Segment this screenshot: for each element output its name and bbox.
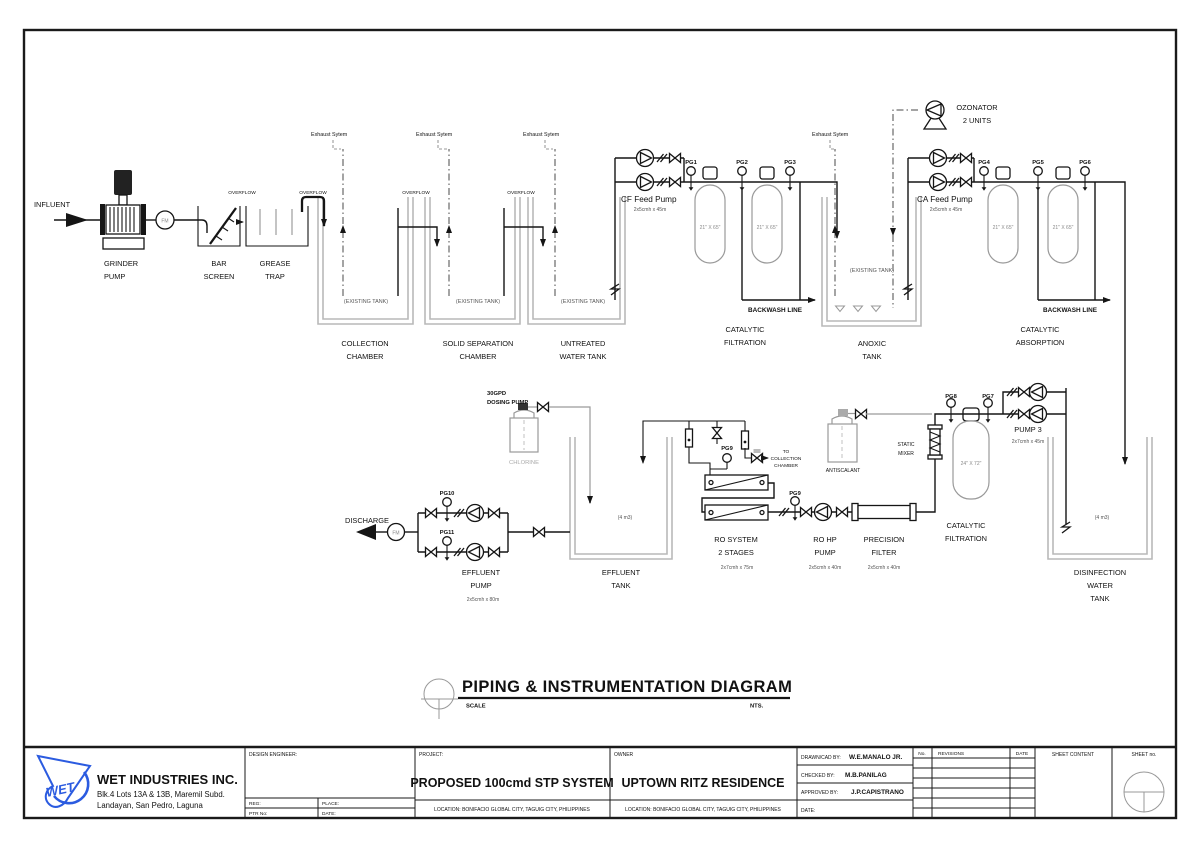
influent-train: FM [54, 170, 324, 249]
logo-text: WET [45, 779, 77, 800]
catalytic-absorption-label: CATALYTICABSORPTION [1016, 325, 1064, 347]
overflow-label: OVERFLOW [299, 190, 327, 196]
chlorine-label: CHLORINE [509, 460, 539, 466]
cf-pump-icon [637, 150, 654, 167]
pid-drawing-sheet: FM [0, 0, 1200, 848]
pressure-gauge-icon [443, 498, 452, 522]
existing-tank-label: (EXISTING TANK) [456, 299, 500, 305]
pressure-gauge-icon [786, 167, 795, 191]
precision-filter-symbol [852, 504, 916, 521]
ozonator-label: OZONATOR2 UNITS [956, 103, 997, 125]
pg5-label: PG5 [1032, 160, 1044, 166]
precision-filter-spec: 2x5cmh x 40m [868, 565, 901, 571]
bar-screen-label: BARSCREEN [204, 259, 235, 281]
owner-location: LOCATION: BONIFACIO GLOBAL CITY, TAGUIG … [625, 807, 781, 813]
existing-tank-label: (EXISTING TANK) [561, 299, 605, 305]
solid-separation-label: SOLID SEPARATIONCHAMBER [443, 339, 514, 361]
discharge-label: DISCHARGE [345, 516, 389, 525]
ca-pump-icon [930, 150, 947, 167]
gate-valve-icon [856, 410, 867, 419]
to-collection-chamber-label: TOCOLLECTIONCHAMBER [771, 449, 802, 469]
influent-arrow [66, 213, 88, 227]
approved-by-label: APPROVED BY: [801, 790, 838, 796]
vessel-size-label: 24" X 72" [961, 461, 982, 467]
ro-system-spec: 2x7cmh x 75m [721, 565, 754, 571]
pg10-label: PG10 [440, 491, 455, 497]
pg9-label: PG9 [789, 491, 801, 497]
effluent-pump-label: EFFLUENTPUMP [462, 568, 501, 590]
pg7-label: PG7 [982, 394, 994, 400]
influent-label: INFLUENT [34, 200, 71, 209]
tank-volume-label: (4 m3) [1095, 515, 1110, 521]
backwash-line-label: BACKWASH LINE [1043, 307, 1098, 314]
ozonator-symbol [924, 101, 946, 129]
exhaust-system-label: Exhaust Sytem [311, 132, 348, 138]
disinfection-tank-label: DISINFECTIONWATERTANK [1074, 568, 1126, 603]
exhaust-system-label: Exhaust Sytem [416, 132, 453, 138]
rev-no-header: No. [918, 751, 925, 757]
gate-valve-icon [961, 178, 972, 187]
sheet-no-label: SHEET no. [1132, 752, 1157, 758]
company-name: WET INDUSTRIES INC. [97, 772, 238, 787]
sheet-no-symbol [1124, 772, 1164, 812]
effluent-pump-train: FM [356, 498, 570, 561]
pressure-gauge-icon [1034, 167, 1043, 191]
cf-feed-train [611, 150, 837, 301]
transfer-pipes [398, 208, 543, 296]
cf2-vessel [953, 421, 989, 499]
drawn-by-label: DRAWN/CAD BY: [801, 755, 841, 761]
cf-feed-pump-label: CF Feed Pump [621, 195, 677, 204]
overflow-label: OVERFLOW [402, 190, 430, 196]
pg6-label: PG6 [1079, 160, 1091, 166]
pg4-label: PG4 [978, 160, 990, 166]
drawn-by-value: W.E.MANALO JR. [849, 754, 902, 761]
project-name: PROPOSED 100cmd STP SYSTEM [410, 776, 613, 790]
ro-system-label: RO SYSTEM2 STAGES [714, 535, 758, 557]
sheet-content-label: SHEET CONTENT [1052, 752, 1094, 758]
revisions-header: REVISIONS [938, 751, 964, 757]
company-address: Blk.4 Lots 13A & 13B, Maremil Subd.Landa… [97, 790, 225, 810]
cf-feed-pump-spec: 2x5cmh x 45m [634, 207, 667, 213]
pump3-spec: 2x7cmh x 45m [1012, 439, 1045, 445]
existing-tank-label: (EXISTING TANK) [850, 268, 894, 274]
ro-hp-pump-spec: 2x5cmh x 40m [809, 565, 842, 571]
ca-feed-pump-label: CA Feed Pump [917, 195, 973, 204]
ca-vessel-1 [988, 185, 1018, 263]
effluent-pump-icon [467, 505, 484, 522]
bar-screen-symbol [198, 206, 243, 246]
pg8-label: PG8 [945, 394, 957, 400]
pressure-gauge-icon [723, 454, 732, 469]
fm-label: FM [161, 219, 168, 225]
antiscalant-dosing [828, 409, 932, 462]
gate-valve-icon [670, 154, 681, 163]
reg-label: REG: [249, 801, 261, 807]
anoxic-diffusers [836, 306, 881, 312]
grease-trap-symbol [246, 206, 308, 246]
gate-valve-icon [538, 403, 549, 412]
scale-label: SCALE [466, 704, 486, 710]
pid-diagram: FM [0, 0, 1200, 848]
pump3-label: PUMP 3 [1014, 425, 1041, 434]
checked-by-label: CHECKED BY: [801, 773, 835, 779]
project-label: PROJECT: [419, 752, 443, 758]
company-logo: WET [38, 756, 90, 807]
pg1-label: PG1 [685, 160, 697, 166]
overflow-label: OVERFLOW [507, 190, 535, 196]
catalytic-filtration2-label: CATALYTICFILTRATION [945, 521, 987, 543]
project-location: LOCATION: BONIFACIO GLOBAL CITY, TAGUIG … [434, 807, 590, 813]
vessel-size-label: 21" X 65" [1053, 225, 1074, 231]
owner-label: OWNER [614, 752, 634, 758]
exhaust-system-label: Exhaust Sytem [812, 132, 849, 138]
catalytic-filtration-label: CATALYTICFILTRATION [724, 325, 766, 347]
date2-label: DATE: [801, 808, 815, 814]
static-mixer-symbol [928, 425, 942, 459]
polishing-train [944, 384, 1070, 534]
static-mixer-label: STATICMIXER [897, 442, 914, 457]
chlorine-dosing [510, 403, 590, 504]
pressure-gauge-icon [980, 167, 989, 191]
pg11-label: PG11 [440, 530, 455, 536]
sheet-border [24, 30, 1176, 818]
effluent-tank-label: EFFLUENTTANK [602, 568, 641, 590]
diagram-labels: INFLUENT GRINDERPUMP BARSCREEN GREASETRA… [34, 103, 1126, 603]
pg3-label: PG3 [784, 160, 796, 166]
overflow-label: OVERFLOW [228, 190, 256, 196]
pg9-label: PG9 [721, 446, 733, 452]
effluent-pump-icon [467, 544, 484, 561]
pressure-gauge-icon [443, 537, 452, 561]
exhaust-system-label: Exhaust Sytem [523, 132, 560, 138]
approved-by-value: J.P.CAPISTRANO [851, 789, 904, 796]
pressure-gauge-icon [687, 167, 696, 191]
gate-valve-icon [670, 178, 681, 187]
grinder-pump-symbol [100, 170, 146, 249]
vessel-size-label: 21" X 65" [757, 225, 778, 231]
title-text: PIPING & INSTRUMENTATION DIAGRAM [462, 678, 792, 696]
grinder-pump-label: GRINDERPUMP [104, 259, 138, 281]
ca-vessel-2 [1048, 185, 1078, 263]
pump3-icon [1030, 384, 1047, 401]
antiscalant-label: ANTISCALANT [826, 468, 860, 474]
pg2-label: PG2 [736, 160, 748, 166]
pressure-gauge-icon [947, 399, 956, 423]
collection-chamber-label: COLLECTIONCHAMBER [341, 339, 388, 361]
backwash-line-label: BACKWASH LINE [748, 307, 803, 314]
cf-vessel-2 [752, 185, 782, 263]
ro-membrane-stage1 [705, 475, 768, 490]
tank-volume-label: (4 m3) [618, 515, 633, 521]
effluent-pump-spec: 2x5cmh x 80m [467, 597, 500, 603]
vessel-size-label: 21" X 65" [700, 225, 721, 231]
ptr-label: PTR No: [249, 811, 267, 817]
gate-valve-icon [713, 428, 722, 439]
date-label: DATE: [322, 811, 336, 817]
title-block: WET WET INDUSTRIES INC. Blk.4 Lots 13A &… [24, 747, 1176, 818]
owner-name: UPTOWN RITZ RESIDENCE [622, 776, 785, 790]
grease-trap-label: GREASETRAP [260, 259, 291, 281]
rotameter-icon [686, 429, 693, 447]
ca-pump-icon [930, 174, 947, 191]
precision-filter-label: PRECISIONFILTER [864, 535, 905, 557]
ozone-line [893, 110, 918, 235]
vessel-size-label: 21" X 65" [993, 225, 1014, 231]
dosing-pump-label: 30GPDDOSING PUMP [487, 391, 528, 406]
checked-by-value: M.B.PANILAG [845, 772, 887, 779]
ro-membrane-stage2 [705, 505, 768, 520]
scale-value: NTS. [750, 704, 764, 710]
relief-valve-icon [754, 449, 761, 453]
pressure-gauge-icon [791, 497, 800, 521]
drawing-title: PIPING & INSTRUMENTATION DIAGRAM SCALE N… [421, 678, 792, 719]
fm-label: FM [392, 531, 399, 537]
place-label: PLACE: [322, 801, 339, 807]
cf-pump-icon [637, 174, 654, 191]
rev-date-header: DATE [1016, 751, 1028, 757]
dosing-pump-icon [838, 409, 848, 416]
pump3-icon [1030, 406, 1047, 423]
overflow-pipe [302, 197, 324, 226]
gate-valve-icon [961, 154, 972, 163]
pressure-gauge-icon [738, 167, 747, 191]
pressure-gauge-icon [1081, 167, 1090, 191]
discharge-arrow [356, 524, 376, 540]
rotameter-icon [742, 431, 749, 449]
design-engineer-label: DESIGN ENGINEER: [249, 752, 297, 758]
cf-vessel-1 [695, 185, 725, 263]
anoxic-tank-label: ANOXICTANK [858, 339, 887, 361]
untreated-water-tank-label: UNTREATEDWATER TANK [560, 339, 607, 361]
ca-feed-pump-spec: 2x5cmh x 45m [930, 207, 963, 213]
ro-hp-pump-label: RO HPPUMP [813, 535, 836, 557]
pressure-gauge-icon [984, 399, 993, 423]
ro-hp-pump-icon [815, 504, 832, 521]
existing-tank-label: (EXISTING TANK) [344, 299, 388, 305]
